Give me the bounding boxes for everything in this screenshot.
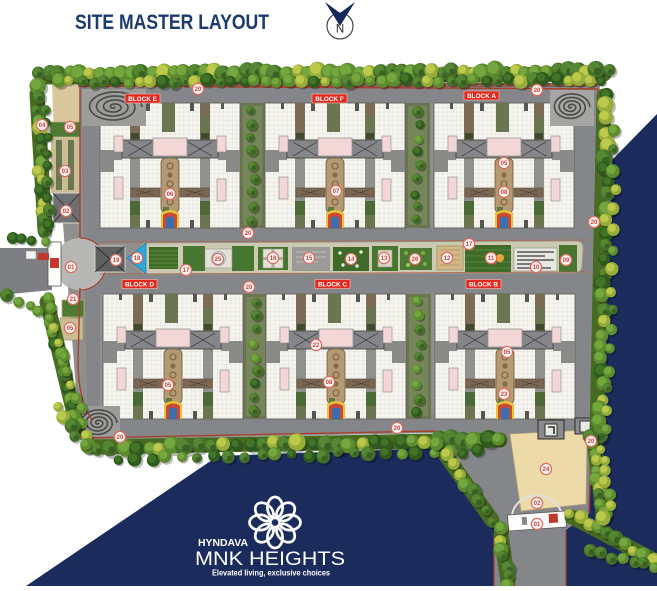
svg-text:16: 16 [270, 256, 277, 262]
svg-text:14: 14 [348, 257, 355, 263]
svg-text:23: 23 [501, 392, 508, 398]
svg-text:BLOCK F: BLOCK F [315, 96, 343, 103]
svg-text:19: 19 [113, 258, 120, 264]
svg-text:BLOCK E: BLOCK E [128, 96, 157, 103]
svg-text:17: 17 [466, 242, 473, 248]
svg-text:15: 15 [306, 256, 313, 262]
svg-text:26: 26 [412, 257, 419, 263]
svg-text:20: 20 [591, 220, 598, 226]
svg-text:22: 22 [313, 343, 320, 349]
svg-text:BLOCK C: BLOCK C [318, 282, 347, 289]
svg-text:02: 02 [63, 209, 70, 215]
svg-text:20: 20 [117, 435, 124, 441]
svg-text:11: 11 [488, 256, 495, 262]
svg-text:17: 17 [183, 268, 190, 274]
svg-text:25: 25 [215, 257, 222, 263]
svg-text:12: 12 [444, 256, 451, 262]
svg-text:20: 20 [534, 88, 541, 94]
svg-text:01: 01 [534, 522, 541, 528]
svg-text:20: 20 [195, 87, 202, 93]
svg-text:20: 20 [246, 285, 253, 291]
svg-text:09: 09 [563, 258, 570, 264]
svg-text:Elevated living, exclusive cho: Elevated living, exclusive choices [212, 568, 330, 578]
svg-text:05: 05 [67, 125, 74, 131]
svg-text:05: 05 [165, 383, 172, 389]
svg-text:20: 20 [588, 439, 595, 445]
svg-text:18: 18 [134, 256, 141, 262]
svg-text:08: 08 [501, 190, 508, 196]
svg-text:05: 05 [504, 350, 511, 356]
svg-text:05: 05 [501, 161, 508, 167]
svg-text:HYNDAVA: HYNDAVA [198, 538, 248, 549]
svg-text:05: 05 [67, 326, 74, 332]
svg-text:02: 02 [534, 501, 541, 507]
svg-text:BLOCK A: BLOCK A [467, 93, 496, 100]
svg-text:BLOCK B: BLOCK B [469, 282, 498, 289]
svg-text:03: 03 [62, 169, 69, 175]
svg-text:04: 04 [39, 123, 46, 129]
svg-text:20: 20 [245, 231, 252, 237]
svg-text:BLOCK D: BLOCK D [125, 282, 154, 289]
svg-text:20: 20 [394, 426, 401, 432]
svg-text:21: 21 [70, 297, 77, 303]
svg-text:08: 08 [326, 380, 333, 386]
svg-text:01: 01 [68, 265, 75, 271]
svg-text:24: 24 [543, 467, 550, 473]
svg-text:13: 13 [381, 256, 388, 262]
svg-text:06: 06 [167, 192, 174, 198]
svg-text:10: 10 [533, 265, 540, 271]
svg-text:SITE MASTER LAYOUT: SITE MASTER LAYOUT [75, 11, 269, 34]
svg-text:07: 07 [333, 189, 340, 195]
